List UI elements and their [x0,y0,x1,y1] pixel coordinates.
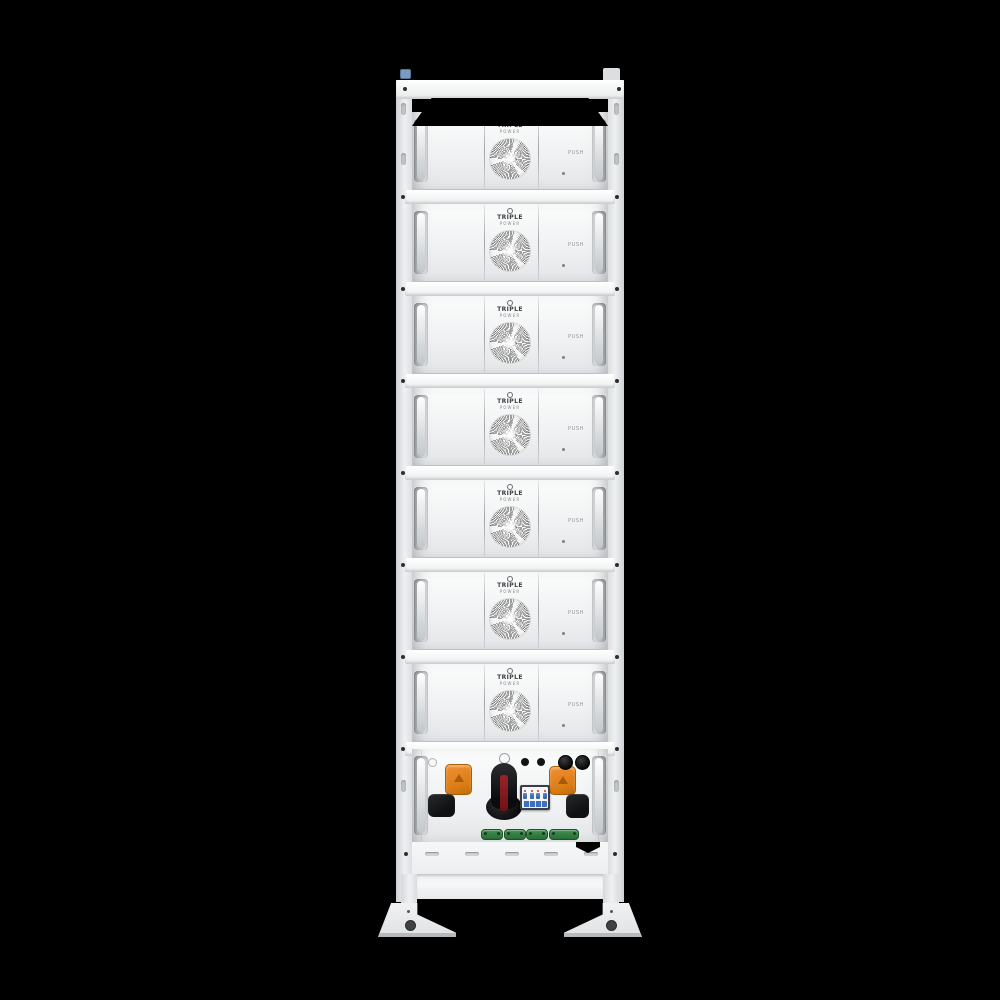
push-button [562,264,565,267]
product-image: TRIPLE POWER PUSH TRIPLE POWER PUSH TRIP… [0,0,1000,1000]
control-unit [412,749,608,844]
brand-logo-subtext: POWER [480,590,540,594]
control-handle-left [414,756,428,835]
brand-logo: TRIPLE POWER [480,208,540,226]
breaker-pole-toggle [536,790,540,799]
fan-vent-icon [489,230,531,272]
warning-triangle-icon [454,774,464,782]
small-port [521,758,529,766]
shelf-rail [405,374,615,388]
control-handle-right [592,756,606,835]
battery-module: TRIPLE POWER PUSH [412,572,608,650]
circuit-breaker [520,785,550,810]
module-handle-left [414,303,428,366]
screw [403,87,407,91]
breaker-toggle [523,793,527,799]
battery-module: TRIPLE POWER PUSH [412,388,608,466]
brand-logo-subtext: POWER [480,406,540,410]
vent-slot [544,852,558,856]
mount-slot [614,780,619,792]
brand-logo: TRIPLE POWER [480,576,540,594]
foot-bolt-hole [405,920,416,931]
rubber-port-cover-left [428,794,455,817]
fan-vent-icon [489,690,531,732]
battery-module-stack: TRIPLE POWER PUSH TRIPLE POWER PUSH TRIP… [405,112,615,756]
base-panel [412,842,608,875]
push-label: PUSH [568,518,602,524]
screw [617,87,621,91]
battery-module: TRIPLE POWER PUSH [412,204,608,282]
push-label: PUSH [568,242,602,248]
top-crossbar [396,80,624,99]
orange-connector-right [549,766,576,795]
foot-sole [560,933,642,938]
brand-logo-subtext: POWER [480,498,540,502]
rotary-switch-red-stripe [500,775,508,811]
push-label: PUSH [568,702,602,708]
fan-vent-icon [489,506,531,548]
warning-triangle-icon [558,776,568,784]
foot-right [560,900,642,938]
blue-screw [400,69,411,79]
fan-vent-icon [489,322,531,364]
module-handle-left [414,395,428,458]
lower-crossbar [417,874,603,899]
shelf-rail [405,650,615,664]
breaker-toggle [536,793,540,799]
breaker-pole-toggle [530,790,534,799]
screw [613,852,617,856]
foot-screw [610,910,613,913]
breaker-toggle [543,793,547,799]
battery-module: TRIPLE POWER PUSH [412,480,608,558]
push-button [562,632,565,635]
screw [404,852,408,856]
breaker-pole-toggle [523,790,527,799]
base-vent-slots [425,852,598,856]
push-button [562,172,565,175]
brand-logo-subtext: POWER [480,682,540,686]
push-label: PUSH [568,334,602,340]
module-handle-left [414,119,428,182]
push-label: PUSH [568,150,602,156]
battery-module: TRIPLE POWER PUSH [412,664,608,742]
push-button [562,356,565,359]
foot-sole [378,933,460,938]
breaker-poles [522,787,548,800]
push-label: PUSH [568,426,602,432]
module-handle-left [414,579,428,642]
brand-logo-subtext: POWER [480,314,540,318]
foot-bolt-hole [606,920,617,931]
vent-slot [425,852,439,856]
breaker-indicator [524,790,526,792]
breaker-indicator [544,790,546,792]
vent-slot [465,852,479,856]
fan-vent-icon [489,138,531,180]
shelf-rail [405,190,615,204]
vent-slot [505,852,519,856]
rubber-port-cover-right [566,794,589,818]
brand-logo: TRIPLE POWER [480,668,540,686]
breaker-pole-toggle [543,790,547,799]
cable-gland [575,755,590,770]
green-terminal-connector [481,829,503,840]
green-terminal-connector [504,829,526,840]
module-handle-left [414,487,428,550]
brand-logo: TRIPLE POWER [480,484,540,502]
breaker-toggle [530,793,534,799]
vent-slot [584,852,598,856]
breaker-indicator [531,790,533,792]
module-handle-left [414,671,428,734]
foot-left [378,900,460,938]
top-opening-shadow [412,98,608,126]
orange-connector-left [445,764,472,795]
shelf-rail [405,466,615,480]
battery-module: TRIPLE POWER PUSH [412,296,608,374]
brand-logo-subtext: POWER [480,130,540,134]
screw-hole [428,758,437,767]
mount-slot [401,780,406,792]
module-handle-left [414,211,428,274]
small-port [537,758,545,766]
foot-screw [407,910,410,913]
cable-gland [558,755,573,770]
push-label: PUSH [568,610,602,616]
green-terminal-connector [549,829,579,840]
fan-vent-icon [489,414,531,456]
green-terminal-connector [526,829,548,840]
push-button [562,540,565,543]
shelf-rail [405,558,615,572]
breaker-indicator [537,790,539,792]
breaker-blue-band [523,801,547,807]
brand-logo: TRIPLE POWER [480,392,540,410]
brand-logo: TRIPLE POWER [480,300,540,318]
fan-vent-icon [489,598,531,640]
circuit-breaker-face [522,787,548,808]
push-button [562,448,565,451]
shelf-rail [405,282,615,296]
brand-logo-subtext: POWER [480,222,540,226]
push-button [562,724,565,727]
